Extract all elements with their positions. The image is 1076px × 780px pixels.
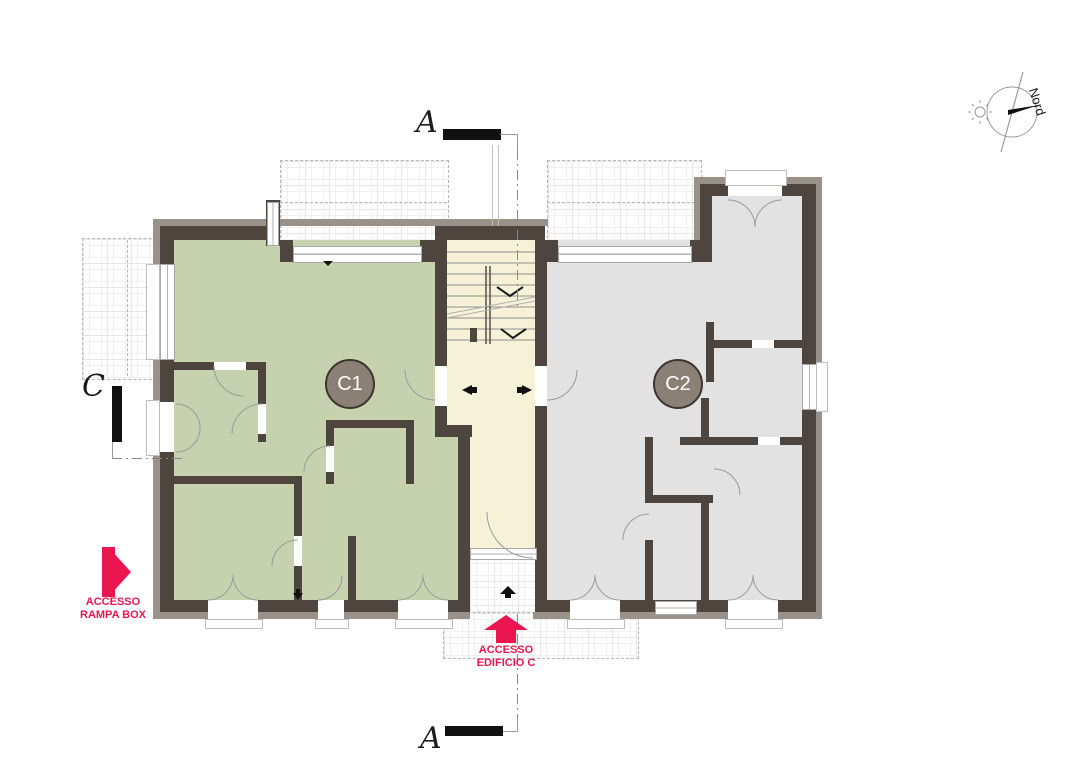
- section-line-a-top: [517, 150, 518, 310]
- rampa-box-line2: RAMPA BOX: [58, 609, 168, 622]
- arrow-head-up: [484, 615, 528, 630]
- window-arrow-c1: [323, 261, 333, 266]
- compass: [966, 64, 1076, 174]
- section-tail: [112, 442, 113, 458]
- rampa-box-label: ACCESSO RAMPA BOX: [58, 596, 168, 622]
- edificio-c-line2: EDIFICIO C: [451, 657, 561, 670]
- entry-arrow-building: [500, 586, 516, 598]
- edificio-c-arrow: [484, 615, 528, 643]
- section-letter-c-left: C: [82, 372, 105, 402]
- projection-line: [492, 145, 493, 226]
- section-bar-a-top: [443, 129, 501, 140]
- edificio-c-label: ACCESSO EDIFICIO C: [451, 644, 561, 670]
- arrow-head-right: [111, 550, 131, 594]
- arrow-shaft: [496, 630, 516, 643]
- section-letter-a-top: A: [416, 108, 438, 138]
- unit-badge-c1: C1: [325, 359, 375, 409]
- section-tail: [500, 134, 517, 135]
- entry-arrow-c2: [517, 385, 532, 395]
- unit-badge-c2: C2: [653, 359, 703, 409]
- section-bar-c-left: [112, 386, 122, 442]
- entry-arrow-c1: [462, 385, 477, 395]
- unit-label-c2: C2: [665, 373, 691, 396]
- stair-stub-wall: [470, 328, 477, 342]
- edificio-c-line1: ACCESSO: [451, 644, 561, 657]
- rampa-box-line1: ACCESSO: [58, 596, 168, 609]
- section-bar-a-bottom: [445, 726, 503, 736]
- rampa-box-arrow: [102, 547, 132, 597]
- section-tail: [503, 731, 518, 732]
- stair-divider: [486, 266, 490, 344]
- section-line-c-left: [112, 458, 184, 459]
- section-tail: [517, 718, 518, 731]
- section-tail: [517, 134, 518, 150]
- stair-direction-chevrons: [497, 287, 526, 338]
- stair-treads: [447, 252, 535, 340]
- exit-arrow-c1: [293, 589, 303, 600]
- projection-line: [498, 145, 499, 226]
- unit-label-c1: C1: [337, 373, 363, 396]
- floor-plan-canvas: A A C C1 C2 ACCESSO RAMPA BOX ACCESSO ED…: [0, 0, 1076, 780]
- section-letter-a-bottom: A: [420, 724, 442, 754]
